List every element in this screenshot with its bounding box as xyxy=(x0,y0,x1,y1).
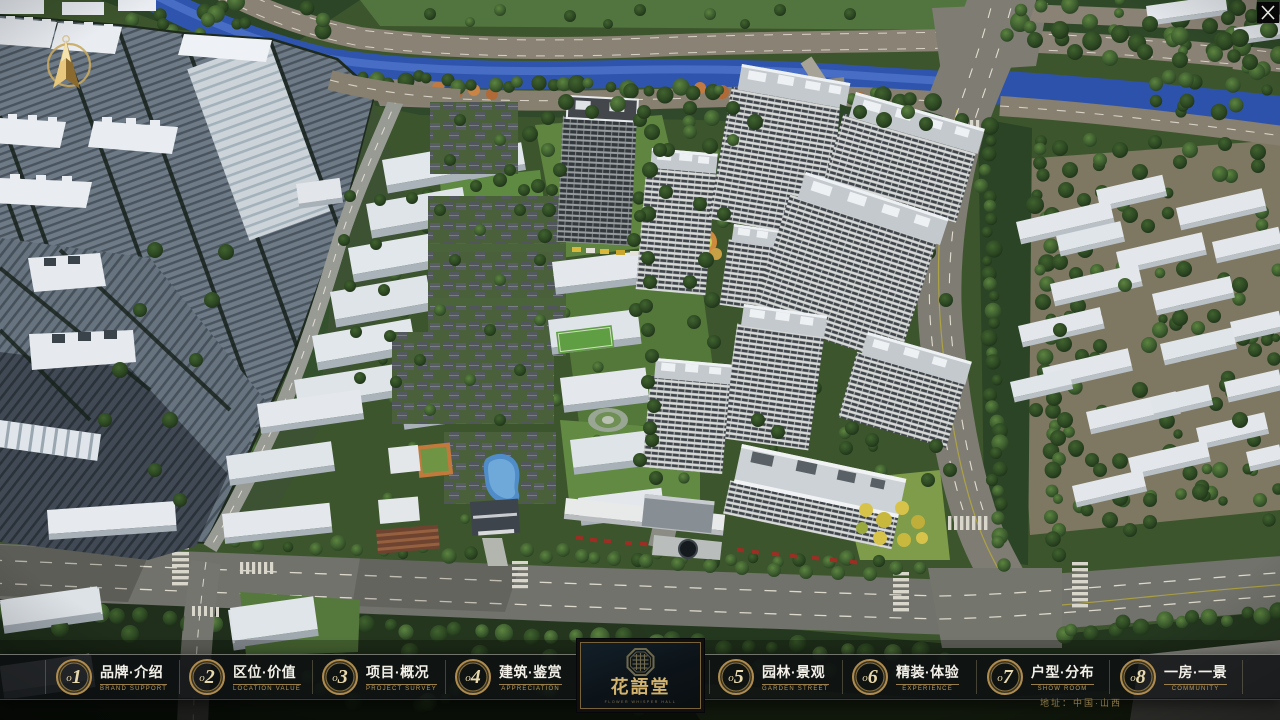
svg-text:FLOWER WHISPER HALL: FLOWER WHISPER HALL xyxy=(605,700,677,704)
svg-text:花語堂: 花語堂 xyxy=(611,676,671,697)
